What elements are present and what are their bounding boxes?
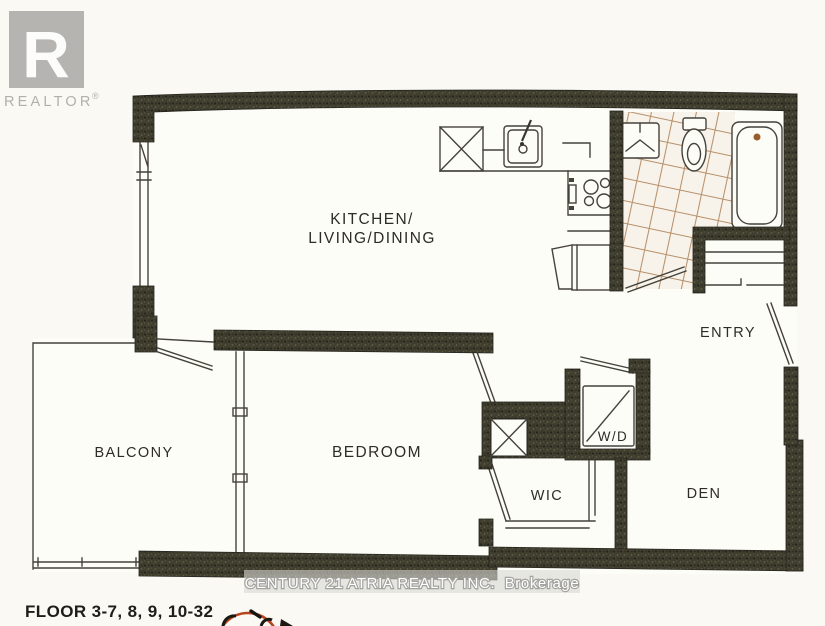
- floorplan-drawing: KITCHEN/ LIVING/DINING BALCONY BEDROOM W…: [0, 0, 825, 626]
- wall-wic-stub-bottom: [479, 519, 493, 546]
- kitchen-cabinet-x-icon: [440, 127, 483, 171]
- wall-kitchen-bath: [610, 111, 623, 291]
- wall-wic-stub-top: [479, 456, 492, 469]
- realtor-logo-r-icon: R: [22, 17, 70, 91]
- wall-balcony-corner: [135, 316, 157, 352]
- label-kitchen-living-dining-1: KITCHEN/: [330, 211, 414, 228]
- wall-bottom-right: [489, 547, 803, 571]
- label-entry: ENTRY: [700, 325, 756, 341]
- bathtub: [732, 122, 782, 229]
- floorplan-page: KITCHEN/ LIVING/DINING BALCONY BEDROOM W…: [0, 0, 825, 626]
- kitchen-sink: [504, 120, 542, 167]
- label-wic: WIC: [531, 488, 563, 504]
- toilet: [682, 118, 706, 171]
- wall-wd-left: [565, 369, 580, 454]
- wall-wd-stub: [629, 359, 650, 373]
- circle-logo-wedge-icon: [280, 619, 293, 626]
- registered-mark-icon: ®: [92, 91, 99, 101]
- label-washer-dryer: W/D: [598, 429, 628, 444]
- closet-x-box-icon: [491, 419, 527, 456]
- brokerage-circle-logo: [217, 611, 293, 626]
- label-balcony: BALCONY: [94, 445, 173, 461]
- wall-right-upper: [784, 94, 797, 306]
- wall-bedroom-top: [214, 330, 493, 353]
- label-den: DEN: [687, 486, 722, 502]
- wall-right-mid: [784, 367, 798, 445]
- watermark-text: CENTURY 21 ATRIA REALTY INC. Brokerage: [245, 575, 580, 592]
- realtor-logo: R REALTOR ®: [4, 11, 99, 110]
- bathroom-vanity-sink: [620, 123, 659, 158]
- wall-den-right: [786, 440, 803, 571]
- brokerage-watermark: CENTURY 21 ATRIA REALTY INC. Brokerage: [244, 570, 580, 593]
- label-kitchen-living-dining-2: LIVING/DINING: [308, 230, 436, 247]
- label-bedroom: BEDROOM: [332, 444, 422, 461]
- wall-wd-bottom: [565, 449, 650, 460]
- realtor-logo-text: REALTOR: [4, 94, 94, 110]
- floor-text: FLOOR 3-7, 8, 9, 10-32: [25, 602, 213, 621]
- wall-wd-right: [636, 371, 650, 454]
- wall-wic-den: [615, 458, 627, 558]
